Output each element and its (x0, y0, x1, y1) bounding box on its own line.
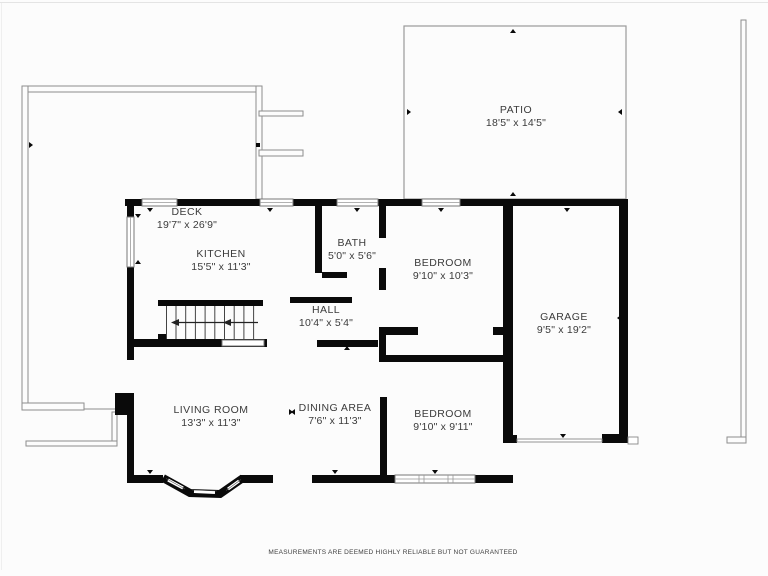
room-name: HALL (299, 304, 353, 317)
room-name: DINING AREA (299, 402, 372, 415)
room-name: BATH (328, 237, 376, 250)
room-label-hall: HALL10'4" x 5'4" (299, 304, 353, 330)
disclaimer-text: MEASUREMENTS ARE DEEMED HIGHLY RELIABLE … (268, 549, 517, 556)
room-name: BEDROOM (413, 257, 473, 270)
room-name: BEDROOM (413, 408, 472, 421)
room-name: PATIO (486, 104, 546, 117)
floor-plan: DECK19'7" x 26'9"PATIO18'5" x 14'5"KITCH… (0, 0, 768, 576)
room-label-bedroom-1: BEDROOM9'10" x 10'3" (413, 257, 473, 283)
room-dimensions: 5'0" x 5'6" (328, 250, 376, 263)
property-line (727, 20, 746, 443)
chimney (115, 393, 134, 415)
room-name: GARAGE (537, 311, 591, 324)
room-dimensions: 19'7" x 26'9" (157, 219, 217, 232)
floor-plan-drawing (0, 0, 768, 576)
room-dimensions: 10'4" x 5'4" (299, 317, 353, 330)
room-dimensions: 18'5" x 14'5" (486, 117, 546, 130)
room-name: DECK (157, 206, 217, 219)
room-name: LIVING ROOM (174, 404, 249, 417)
room-dimensions: 13'3" x 11'3" (174, 417, 249, 430)
room-label-deck: DECK19'7" x 26'9" (157, 206, 217, 232)
room-label-bedroom-2: BEDROOM9'10" x 9'11" (413, 408, 472, 434)
deck-outline (22, 86, 303, 446)
room-label-living-room: LIVING ROOM13'3" x 11'3" (174, 404, 249, 430)
room-name: KITCHEN (191, 248, 250, 261)
room-label-kitchen: KITCHEN15'5" x 11'3" (191, 248, 250, 274)
room-dimensions: 7'6" x 11'3" (299, 415, 372, 428)
room-label-patio: PATIO18'5" x 14'5" (486, 104, 546, 130)
bay-window (163, 478, 243, 494)
room-dimensions: 9'10" x 10'3" (413, 270, 473, 283)
room-dimensions: 9'5" x 19'2" (537, 324, 591, 337)
room-label-dining-area: DINING AREA7'6" x 11'3" (299, 402, 372, 428)
room-dimensions: 15'5" x 11'3" (191, 261, 250, 274)
room-label-garage: GARAGE9'5" x 19'2" (537, 311, 591, 337)
room-dimensions: 9'10" x 9'11" (413, 421, 472, 434)
room-label-bath: BATH5'0" x 5'6" (328, 237, 376, 263)
